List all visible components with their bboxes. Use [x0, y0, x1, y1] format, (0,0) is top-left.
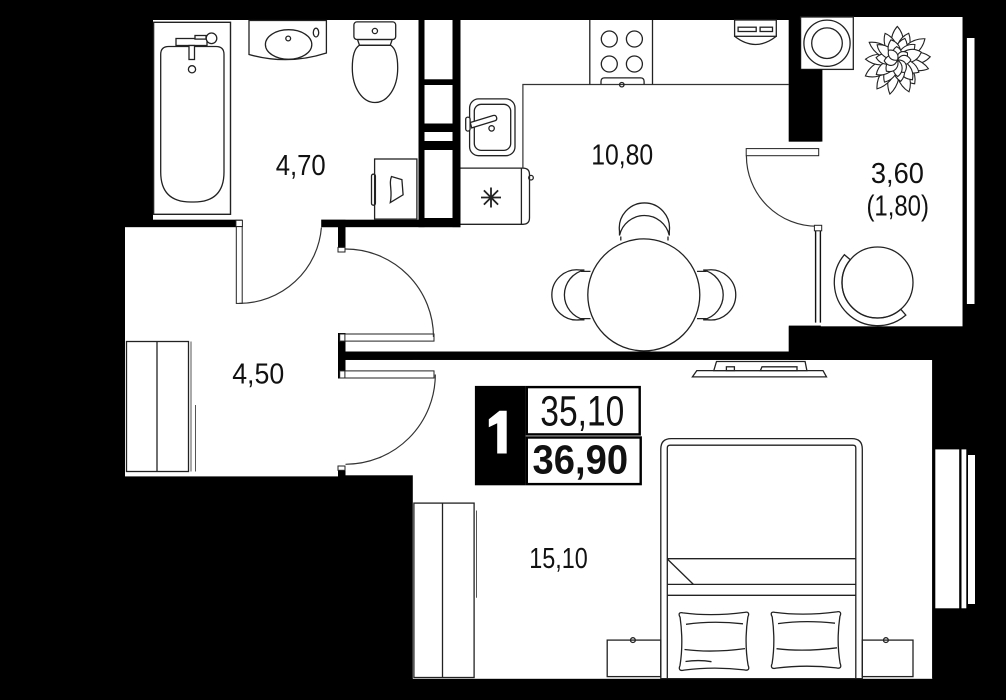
- svg-text:4,70: 4,70: [276, 150, 326, 182]
- svg-text:4,50: 4,50: [232, 358, 284, 390]
- svg-text:15,10: 15,10: [529, 543, 588, 575]
- svg-text:36,90: 36,90: [533, 436, 629, 482]
- svg-text:3,60: 3,60: [871, 158, 924, 190]
- svg-text:10,80: 10,80: [591, 139, 653, 171]
- svg-text:35,10: 35,10: [540, 388, 624, 436]
- svg-text:(1,80): (1,80): [866, 191, 929, 223]
